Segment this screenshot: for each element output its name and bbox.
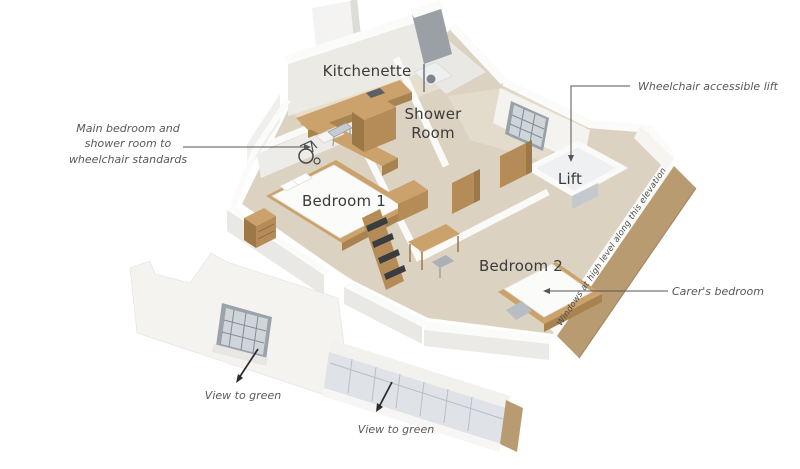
bedroom2-door-edge (474, 169, 480, 203)
room-label-bedroom-1: Bedroom 1 (302, 192, 386, 211)
annotation-carers-bedroom: Carer's bedroom (672, 284, 764, 299)
room-label-bedroom-2: Bedroom 2 (479, 257, 563, 276)
annotation-wheelchair-standards: Main bedroom and shower room to wheelcha… (69, 121, 187, 167)
floorplan-canvas: Kitchenette Shower Room Bedroom 1 Lift B… (0, 0, 800, 469)
room-label-lift: Lift (558, 170, 582, 189)
annotation-wheelchair-lift: Wheelchair accessible lift (638, 79, 778, 94)
arrowhead-icon (236, 374, 243, 383)
lift-wood-door-edge (526, 140, 532, 175)
room-label-kitchenette: Kitchenette (323, 62, 412, 81)
annotation-view-green-left: View to green (205, 388, 281, 403)
room-label-shower-room: Shower Room (404, 105, 461, 143)
annotation-view-green-right: View to green (358, 422, 434, 437)
